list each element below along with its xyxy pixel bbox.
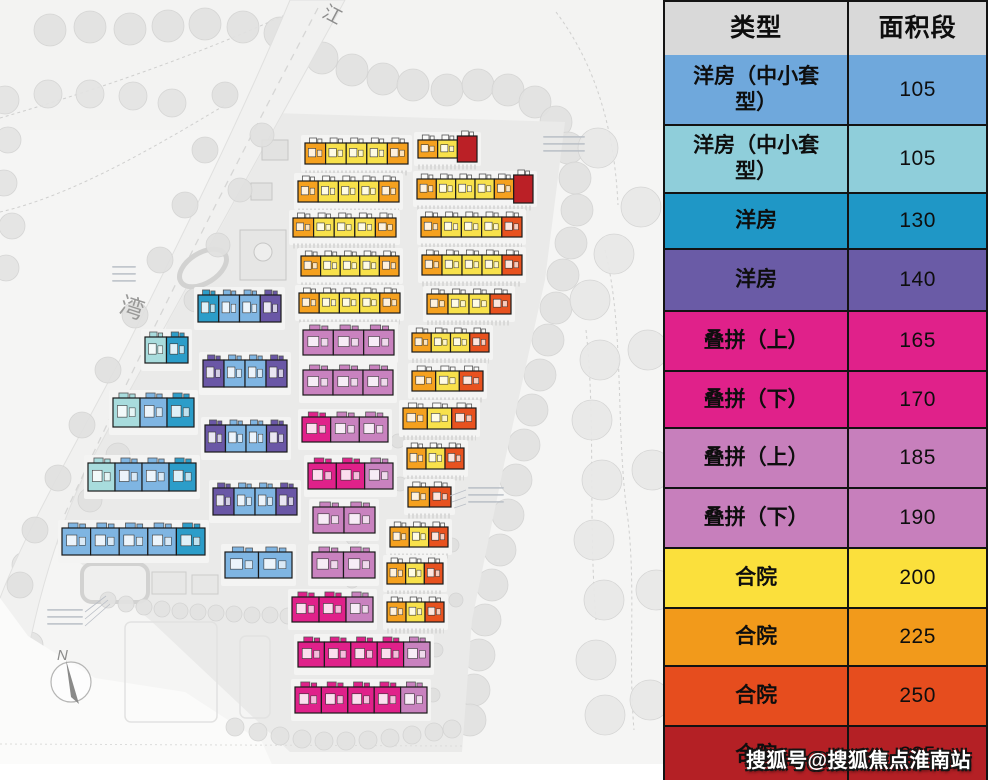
tree-icon [431, 74, 463, 106]
tree-icon [158, 89, 186, 117]
tree-icon [226, 606, 242, 622]
legend-row: 合院225 [665, 607, 986, 665]
building [84, 455, 200, 499]
building [299, 322, 398, 363]
building [403, 440, 468, 478]
annotation-text-line [468, 487, 504, 489]
building [386, 519, 452, 556]
building [417, 209, 526, 246]
tree-icon [114, 13, 146, 45]
legend-area-cell: 190 [849, 489, 986, 547]
legend-row: 叠拼（下）170 [665, 370, 986, 427]
building [383, 555, 447, 593]
annotation-text-line [468, 501, 504, 503]
legend-type-cell: 洋房（中小套型） [665, 126, 849, 192]
building [304, 455, 397, 497]
tree-icon [208, 605, 224, 621]
legend-row: 洋房130 [665, 192, 986, 248]
building [58, 520, 209, 563]
building [309, 499, 379, 541]
building [288, 589, 377, 630]
bottom-margin [0, 764, 663, 780]
legend-row: 洋房（中小套型）105 [665, 55, 986, 124]
tree-icon [621, 187, 661, 227]
building [221, 544, 296, 586]
legend-type-cell: 洋房 [665, 194, 849, 248]
compass-north-label: N [57, 647, 68, 664]
building [298, 409, 392, 450]
legend-area-cell: 130 [849, 194, 986, 248]
annotation-text-line [468, 494, 504, 496]
legend-area-cell: 165 [849, 312, 986, 370]
tree-icon [172, 192, 198, 218]
legend-type-cell: 叠拼（上） [665, 429, 849, 487]
tree-icon [154, 601, 170, 617]
building [199, 352, 291, 395]
building [308, 544, 379, 586]
tree-icon [508, 429, 540, 461]
tree-icon [262, 607, 278, 623]
building [295, 285, 404, 322]
tree-icon [628, 330, 663, 370]
page: N 江 湾 类型 面积段 洋房（中小套型）105洋房（中小套型）105洋房130… [0, 0, 988, 780]
building [209, 480, 301, 523]
building [141, 329, 192, 371]
legend-header-area: 面积段 [849, 2, 986, 55]
tree-icon [337, 732, 355, 750]
legend-area-cell: 170 [849, 372, 986, 427]
tree-icon [34, 14, 66, 46]
legend-type-cell: 叠拼（下） [665, 372, 849, 427]
tree-icon [576, 640, 616, 680]
tree-icon [462, 69, 494, 101]
annotation-text-line [47, 616, 83, 618]
tree-icon [561, 194, 593, 226]
legend-area-cell: 185 [849, 429, 986, 487]
annotation-text-line [47, 609, 83, 611]
tree-icon [22, 517, 48, 543]
legend-area-cell: 225 [849, 609, 986, 665]
building [301, 135, 412, 173]
legend-type-cell: 叠拼（下） [665, 489, 849, 547]
tree-icon [403, 726, 421, 744]
legend-type-cell: 洋房（中小套型） [665, 55, 849, 124]
tree-icon [555, 227, 587, 259]
annotation-text-line [112, 273, 136, 275]
tree-icon [192, 137, 218, 163]
tree-icon [582, 460, 622, 500]
annotation-text-line [47, 623, 83, 625]
tree-icon [584, 580, 624, 620]
tree-icon [293, 730, 311, 748]
legend-type-cell: 合院 [665, 609, 849, 665]
legend-area-cell: 140 [849, 250, 986, 310]
legend-row: 合院250 [665, 665, 986, 725]
tree-icon [572, 400, 612, 440]
building [297, 248, 403, 285]
tree-icon [152, 10, 184, 42]
watermark: 搜狐号@搜狐焦点淮南站 [746, 744, 971, 773]
tree-icon [136, 599, 152, 615]
tree-icon [244, 607, 260, 623]
tree-icon [271, 727, 289, 745]
tree-icon [359, 731, 377, 749]
legend-row: 洋房（中小套型）105 [665, 124, 986, 192]
site-plan-svg: N 江 湾 [0, 0, 663, 780]
building [194, 287, 285, 330]
tree-icon [206, 233, 230, 257]
tree-icon [76, 80, 104, 108]
tree-icon [228, 178, 252, 202]
legend-area-cell: 250 [849, 667, 986, 725]
tree-icon [69, 412, 95, 438]
tree-icon [34, 80, 62, 108]
tree-icon [189, 8, 221, 40]
tree-icon [0, 213, 25, 239]
building [291, 679, 431, 721]
tree-icon [7, 572, 33, 598]
site-plan-map: N 江 湾 [0, 0, 663, 780]
building [404, 479, 455, 516]
tree-icon [484, 534, 516, 566]
tree-icon [443, 720, 461, 738]
legend-area-cell: 200 [849, 549, 986, 607]
legend-row: 合院200 [665, 547, 986, 607]
building [294, 173, 403, 211]
building [418, 247, 526, 284]
legend-type-cell: 洋房 [665, 250, 849, 310]
tree-icon [45, 465, 71, 491]
annotation-text-line [543, 143, 585, 145]
tree-icon [559, 162, 591, 194]
legend-type-cell: 合院 [665, 549, 849, 607]
legend-row: 叠拼（下）190 [665, 487, 986, 547]
annotation-text-line [112, 280, 136, 282]
tree-icon [532, 324, 564, 356]
legend-type-cell: 叠拼（上） [665, 312, 849, 370]
tree-icon [226, 718, 244, 736]
tree-icon [249, 723, 267, 741]
tree-icon [449, 593, 463, 607]
tree-icon [315, 732, 333, 750]
tree-icon [147, 247, 173, 273]
tree-icon [172, 603, 188, 619]
building [299, 362, 397, 403]
building [423, 286, 515, 323]
annotation-text-line [543, 150, 585, 152]
tree-icon [119, 82, 147, 110]
tree-icon [190, 604, 206, 620]
building [109, 390, 198, 435]
tree-icon [578, 128, 618, 168]
annotation-text-line [543, 136, 585, 138]
tree-icon [492, 499, 524, 531]
tree-icon [250, 123, 274, 147]
building [408, 363, 487, 400]
building [201, 417, 291, 460]
tree-icon [574, 520, 614, 560]
building [294, 634, 434, 675]
tree-icon [516, 394, 548, 426]
tree-icon [540, 292, 572, 324]
legend-area-cell: 105 [849, 126, 986, 192]
building [413, 170, 537, 208]
tree-icon [381, 729, 399, 747]
building [408, 325, 493, 361]
tree-icon [118, 596, 134, 612]
building [414, 131, 481, 167]
tree-icon [95, 357, 121, 383]
tree-icon [547, 259, 579, 291]
tree-icon [570, 280, 610, 320]
tree-icon [74, 11, 106, 43]
legend-table: 类型 面积段 洋房（中小套型）105洋房（中小套型）105洋房130洋房140叠… [663, 0, 988, 780]
tree-icon [227, 11, 259, 43]
legend-header-row: 类型 面积段 [665, 2, 986, 55]
tree-icon [500, 464, 532, 496]
building [383, 594, 448, 631]
building [399, 400, 480, 438]
tree-icon [336, 54, 368, 86]
legend-type-cell: 合院 [665, 667, 849, 725]
tree-icon [212, 82, 238, 108]
legend-row: 洋房140 [665, 248, 986, 310]
tree-icon [397, 69, 429, 101]
tree-icon [425, 723, 443, 741]
tree-icon [585, 695, 625, 735]
tree-icon [524, 359, 556, 391]
tree-icon [594, 234, 634, 274]
tree-icon [367, 63, 399, 95]
tree-icon [580, 340, 620, 380]
legend-row: 叠拼（上）165 [665, 310, 986, 370]
legend-row: 叠拼（上）185 [665, 427, 986, 487]
legend-area-cell: 105 [849, 55, 986, 124]
building [289, 210, 400, 246]
legend-header-type: 类型 [665, 2, 849, 55]
annotation-text-line [112, 266, 136, 268]
